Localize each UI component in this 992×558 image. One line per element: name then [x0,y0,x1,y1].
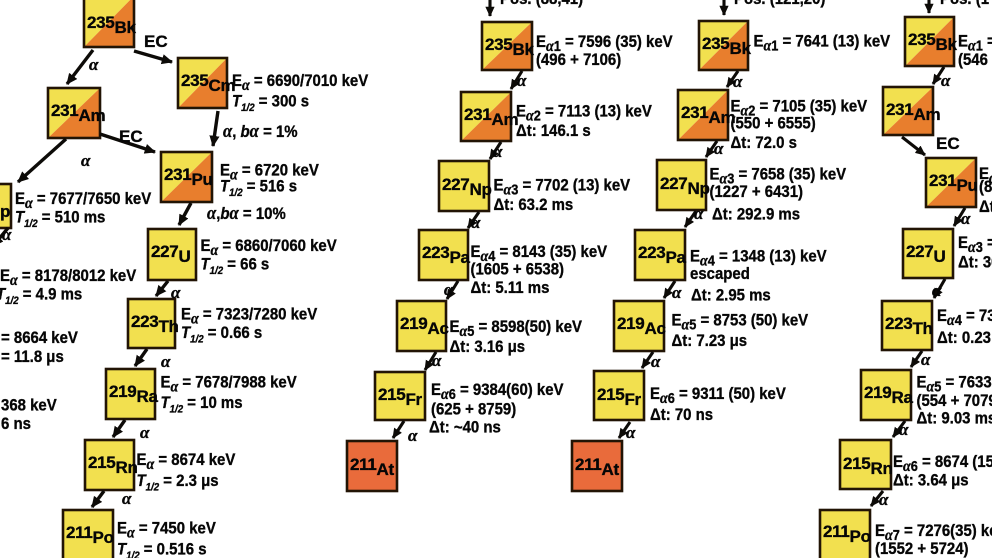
svg-text:(1227 + 6431): (1227 + 6431) [710,183,803,201]
svg-text:Δt: 2.95 ms: Δt: 2.95 ms [691,287,771,305]
svg-text:EC: EC [119,127,143,146]
svg-text:α: α [81,151,91,170]
svg-text:α: α [733,72,743,91]
svg-text:α: α [626,423,636,442]
svg-text:α: α [517,71,527,90]
svg-text:α: α [714,139,724,158]
svg-text:α: α [140,423,150,442]
svg-text:α,bα = 10%: α,bα = 10% [207,202,286,223]
svg-text:(550 + 6555): (550 + 6555) [731,115,816,133]
svg-text:α: α [961,209,971,228]
svg-text:EC: EC [936,134,960,153]
svg-text:(496 + 7106): (496 + 7106) [536,51,621,69]
svg-text:Δt: 7.23 μs: Δt: 7.23 μs [672,332,748,350]
svg-text:p: p [0,202,10,221]
svg-text:Δt: 9.03 ms: Δt: 9.03 ms [917,410,992,428]
svg-text:6 ns: 6 ns [1,415,31,433]
svg-text:α, bα = 1%: α, bα = 1% [223,120,298,141]
svg-text:Δt: 0.23 s: Δt: 0.23 s [937,329,992,347]
svg-text:Δt: 3.64 μs: Δt: 3.64 μs [893,472,969,490]
svg-text:α: α [651,352,661,371]
svg-text:(1552 + 5724): (1552 + 5724) [875,540,968,558]
svg-text:α: α [471,213,481,232]
svg-text:368 keV: 368 keV [1,397,57,415]
svg-text:Pos. (121,20): Pos. (121,20) [734,0,825,8]
svg-text:α: α [879,490,889,509]
svg-text:Pos. (88,41): Pos. (88,41) [500,0,583,8]
svg-text:(546 + 7095): (546 + 7095) [958,51,992,69]
svg-text:α: α [444,280,454,299]
svg-text:α: α [122,489,132,508]
svg-text:Δt: 36 s: Δt: 36 s [979,198,992,216]
svg-text:α: α [408,426,418,445]
svg-text:Δt: 30.9 s: Δt: 30.9 s [958,254,992,272]
svg-text:α: α [941,71,951,90]
svg-text:(1605 + 6538): (1605 + 6538) [471,261,564,279]
svg-text:α: α [932,281,942,300]
svg-text:Δt: ~40 ns: Δt: ~40 ns [429,419,501,437]
svg-text:Δt: 292.9 ms: Δt: 292.9 ms [712,206,800,224]
svg-text:= 8664 keV: = 8664 keV [1,329,78,347]
svg-text:α: α [921,350,931,369]
svg-text:(850 + 7305): (850 + 7305) [979,178,992,196]
svg-text:α: α [493,142,503,161]
svg-text:(625 + 8759): (625 + 8759) [431,401,516,419]
svg-text:(554 + 7079): (554 + 7079) [917,392,992,410]
svg-text:Pos. (1: Pos. (1 [940,0,989,8]
svg-text:α: α [432,351,442,370]
svg-text:α: α [161,352,171,371]
svg-text:α: α [694,204,704,223]
svg-text:Δt: 5.11 ms: Δt: 5.11 ms [471,279,550,297]
svg-text:α: α [672,283,682,302]
svg-text:escaped: escaped [690,265,750,283]
svg-text:α: α [89,55,99,74]
svg-text:Δt: 70 ns: Δt: 70 ns [650,406,713,424]
svg-text:= 11.8 μs: = 11.8 μs [1,348,64,366]
svg-text:α: α [899,420,909,439]
svg-text:EC: EC [144,32,168,51]
svg-text:α: α [171,283,181,302]
svg-text:Δt: 3.16 μs: Δt: 3.16 μs [450,338,526,356]
svg-text:Δt: 72.0 s: Δt: 72.0 s [731,134,798,152]
svg-text:α: α [2,225,12,244]
svg-text:Δt: 63.2 ms: Δt: 63.2 ms [494,196,574,214]
svg-text:Δt: 146.1 s: Δt: 146.1 s [516,122,591,140]
